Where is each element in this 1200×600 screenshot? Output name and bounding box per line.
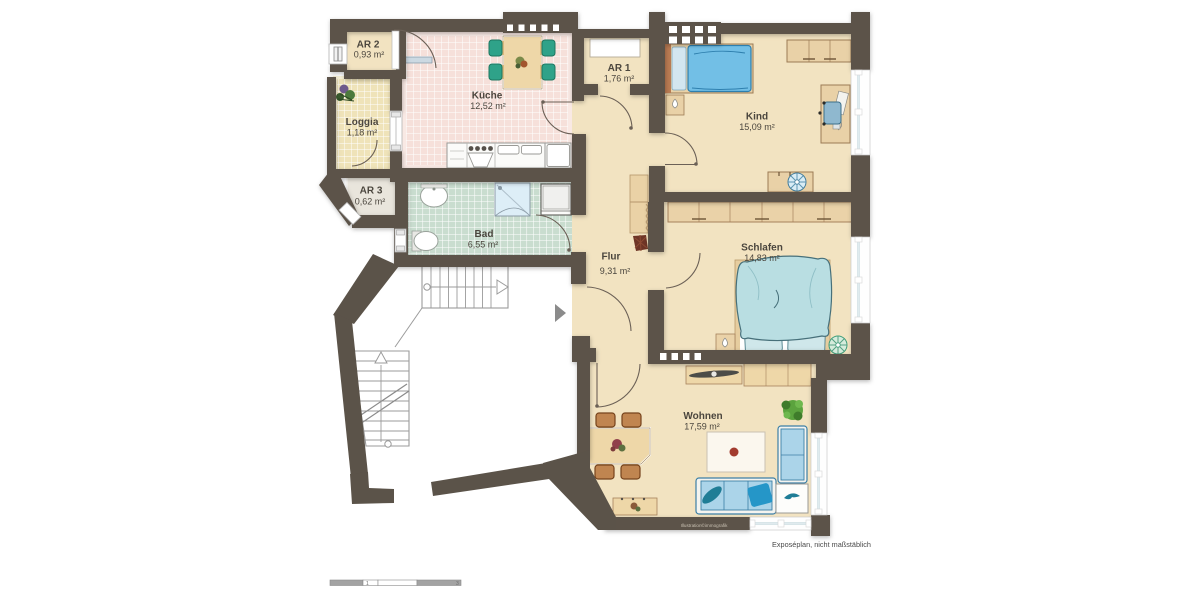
svg-text:Illustration©immografik: Illustration©immografik	[681, 522, 728, 528]
svg-text:Bad: Bad	[475, 229, 494, 240]
svg-text:15,09 m²: 15,09 m²	[739, 122, 775, 132]
svg-text:12,52 m²: 12,52 m²	[470, 101, 506, 111]
svg-text:Loggia: Loggia	[346, 117, 379, 128]
svg-text:3: 3	[456, 581, 459, 587]
svg-text:1,76 m²: 1,76 m²	[604, 74, 635, 84]
svg-text:14,83 m²: 14,83 m²	[744, 253, 780, 263]
svg-text:1,18 m²: 1,18 m²	[347, 128, 378, 138]
svg-text:9,31 m²: 9,31 m²	[600, 266, 631, 276]
svg-text:AR 3: AR 3	[360, 186, 383, 197]
svg-text:17,59 m²: 17,59 m²	[684, 422, 720, 432]
svg-text:Schlafen: Schlafen	[741, 243, 783, 254]
svg-text:Wohnen: Wohnen	[683, 411, 722, 422]
svg-text:Flur: Flur	[602, 252, 621, 263]
svg-text:1: 1	[366, 581, 369, 587]
svg-text:6,55 m²: 6,55 m²	[468, 240, 499, 250]
svg-text:Exposéplan, nicht maßstäblich: Exposéplan, nicht maßstäblich	[772, 540, 871, 549]
svg-text:Kind: Kind	[746, 112, 768, 123]
svg-text:AR 1: AR 1	[608, 63, 631, 74]
svg-text:0,93 m²: 0,93 m²	[354, 50, 385, 60]
svg-text:Küche: Küche	[472, 91, 503, 102]
svg-text:0,62 m²: 0,62 m²	[355, 197, 386, 207]
